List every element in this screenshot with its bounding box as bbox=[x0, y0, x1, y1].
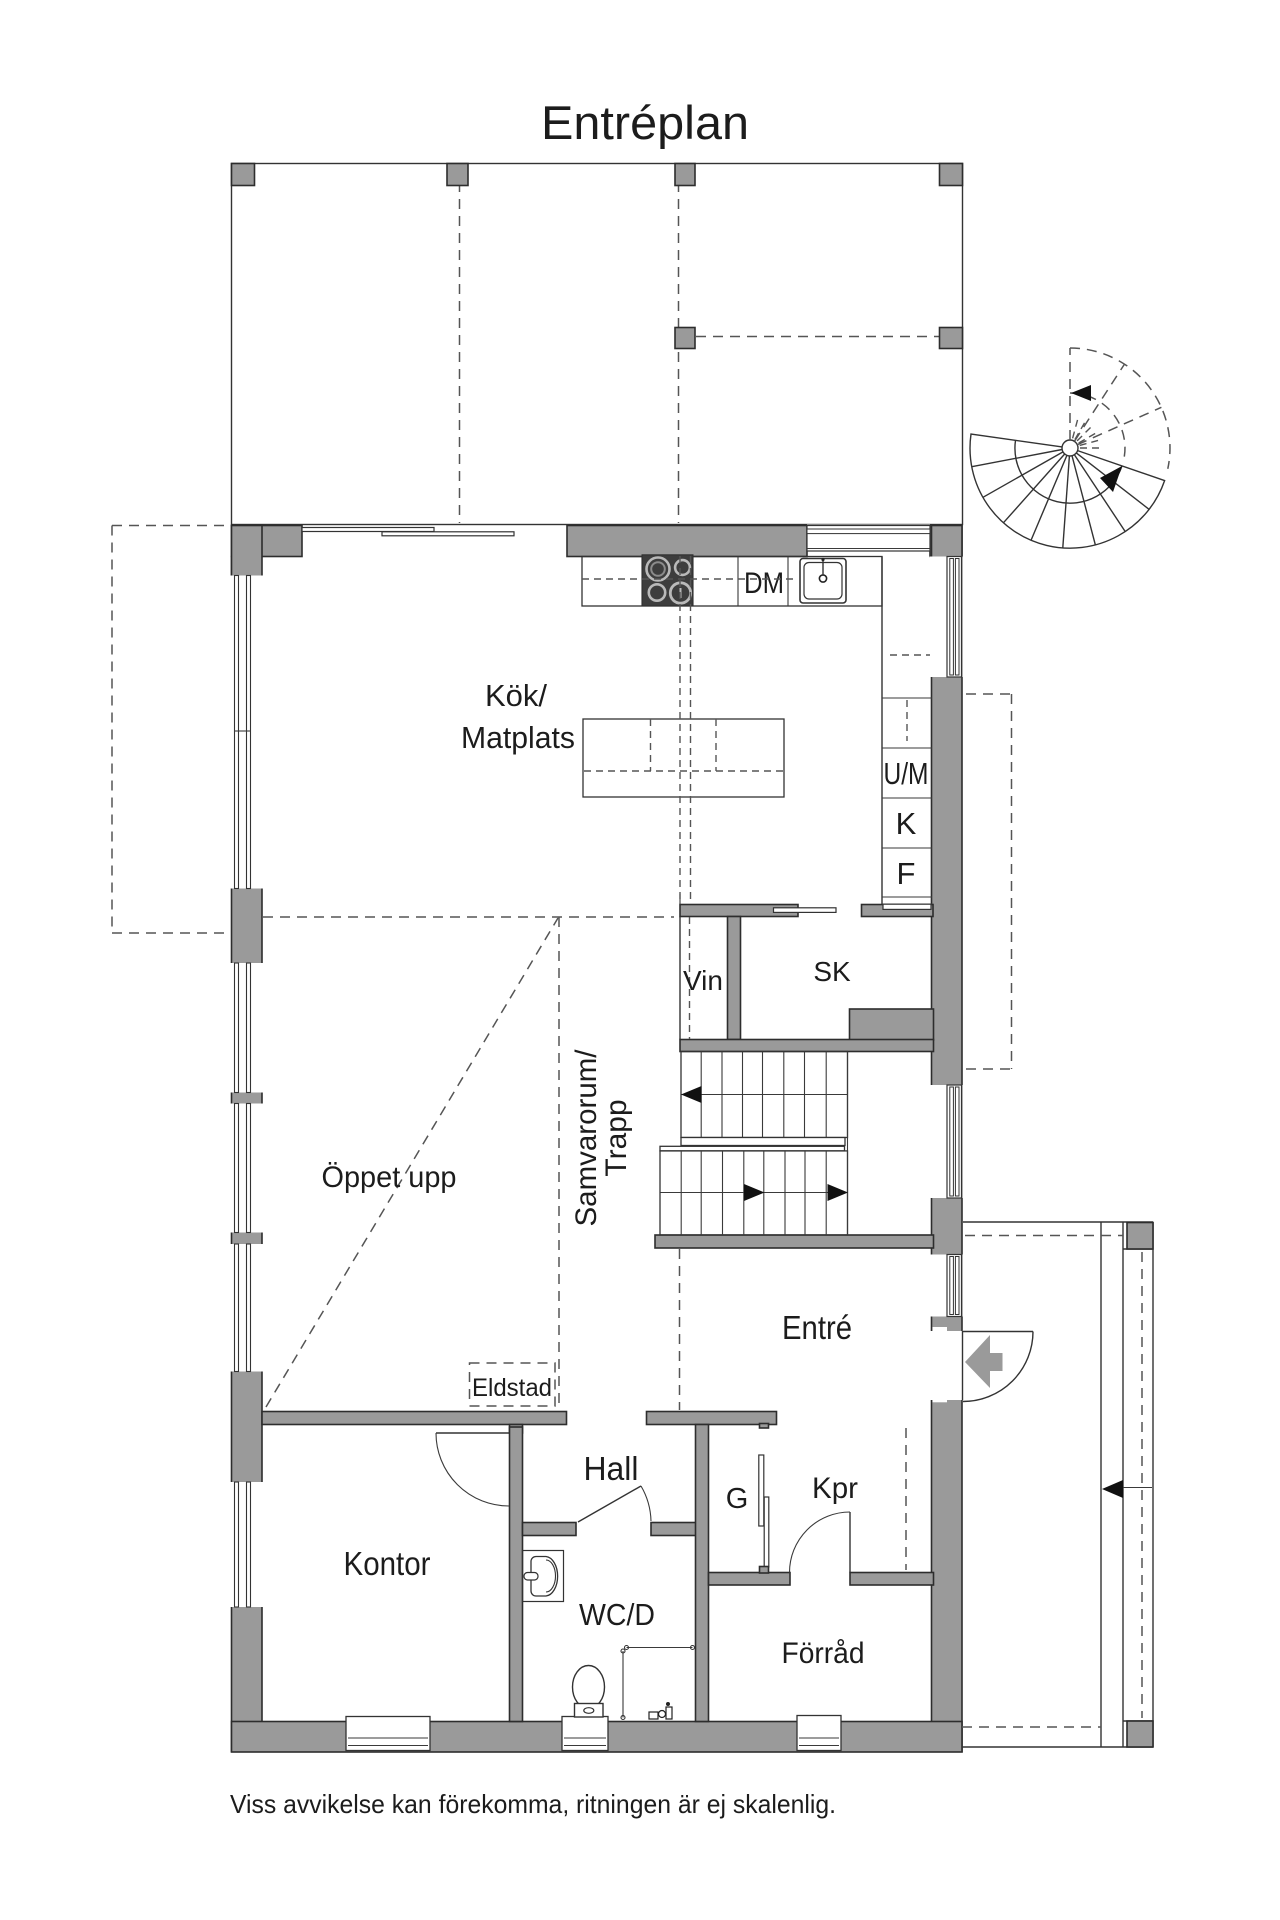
svg-text:WC/D: WC/D bbox=[579, 1597, 655, 1632]
svg-text:Hall: Hall bbox=[584, 1450, 639, 1487]
svg-text:Förråd: Förråd bbox=[782, 1637, 865, 1670]
svg-text:Viss avvikelse kan förekomma,: Viss avvikelse kan förekomma, ritningen … bbox=[230, 1789, 836, 1819]
svg-text:Matplats: Matplats bbox=[461, 720, 575, 755]
svg-text:K: K bbox=[896, 806, 917, 841]
svg-text:Entré: Entré bbox=[782, 1309, 852, 1346]
svg-text:G: G bbox=[726, 1483, 749, 1515]
svg-text:U/M: U/M bbox=[884, 756, 929, 791]
svg-text:Vin: Vin bbox=[683, 965, 723, 996]
svg-text:F: F bbox=[897, 856, 916, 891]
svg-text:Entréplan: Entréplan bbox=[541, 96, 749, 149]
svg-text:Trapp: Trapp bbox=[600, 1099, 633, 1176]
svg-text:SK: SK bbox=[813, 956, 851, 987]
svg-text:Kontor: Kontor bbox=[344, 1545, 431, 1582]
svg-text:Eldstad: Eldstad bbox=[472, 1374, 552, 1402]
svg-text:Öppet upp: Öppet upp bbox=[322, 1161, 457, 1194]
svg-text:Kök/: Kök/ bbox=[485, 678, 547, 713]
svg-text:Kpr: Kpr bbox=[812, 1472, 858, 1505]
svg-text:DM: DM bbox=[744, 567, 784, 600]
svg-text:Samvarorum/: Samvarorum/ bbox=[570, 1049, 603, 1227]
